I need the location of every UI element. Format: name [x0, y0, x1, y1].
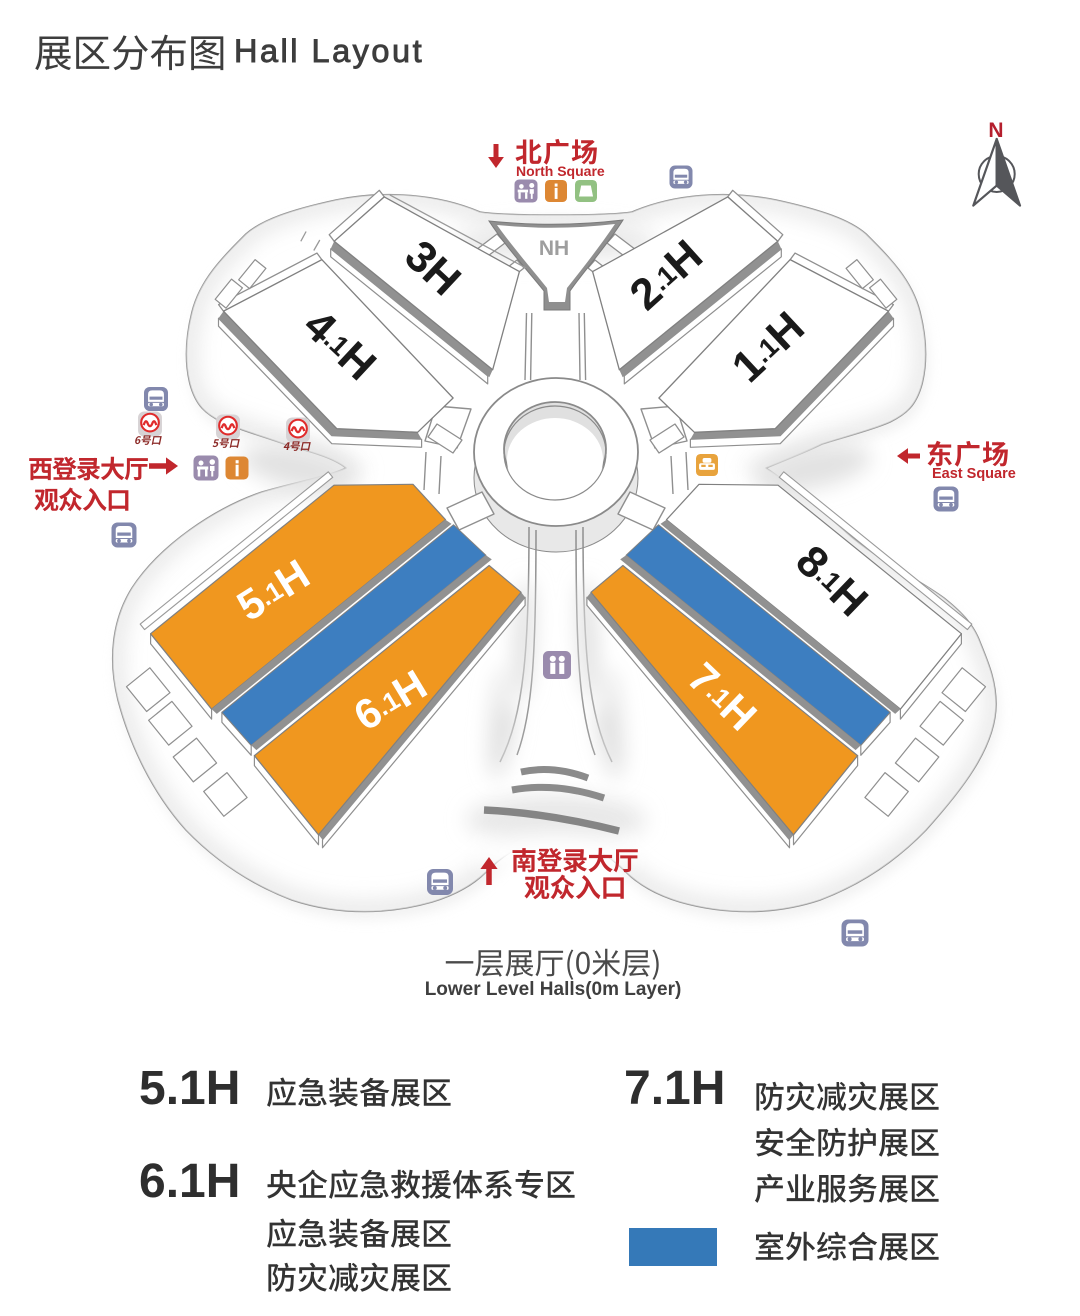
svg-text:5.1H: 5.1H: [139, 1062, 240, 1115]
svg-text:7.1H: 7.1H: [624, 1062, 725, 1115]
svg-text:NH: NH: [539, 237, 569, 260]
svg-text:North Square: North Square: [516, 163, 605, 179]
svg-text:Hall Layout: Hall Layout: [234, 33, 424, 69]
svg-text:East Square: East Square: [932, 466, 1016, 482]
svg-text:6.1H: 6.1H: [139, 1155, 240, 1208]
svg-text:Lower Level Halls(0m Layer): Lower Level Halls(0m Layer): [425, 979, 682, 1000]
